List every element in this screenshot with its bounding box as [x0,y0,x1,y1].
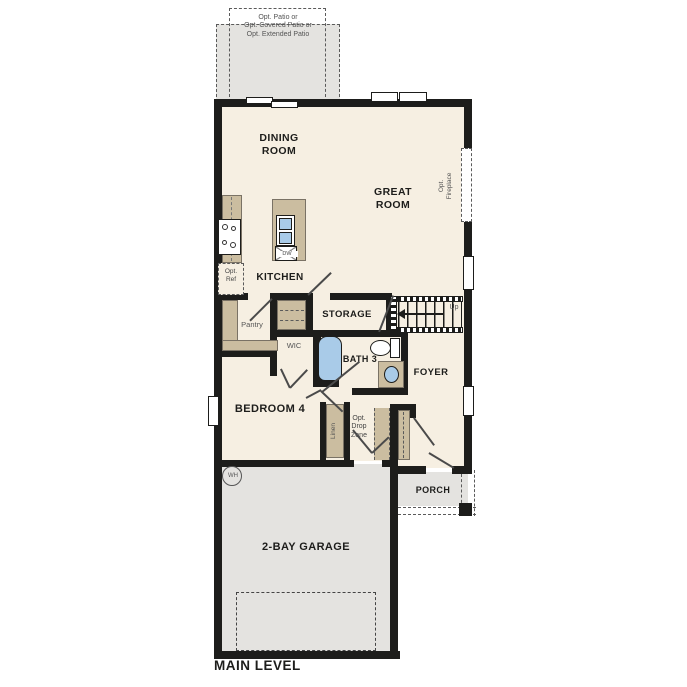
room-label-bath3: BATH 3 [338,354,382,365]
room-label-foyer: FOYER [407,367,455,379]
patio-label: Opt. Patio or Opt. Covered Patio or Opt.… [220,14,336,39]
sliding-door-panel [246,97,273,104]
room-label-garage: 2-BAY GARAGE [262,541,350,555]
window [399,92,427,102]
pantry-shelf-bottom [222,340,278,351]
drop-zone-cabinet [374,408,390,460]
window [371,92,398,102]
wall-closet-right-stub [410,404,416,418]
burner [230,242,236,248]
floor-plan: Opt. Patio or Opt. Covered Patio or Opt.… [0,0,687,687]
stairs-up-label: Up [445,304,463,312]
sliding-door-panel [271,101,298,108]
window [463,386,474,416]
wall-porch-front-a [398,466,426,474]
opt-fireplace-label: Opt. Fireplace [438,166,458,206]
room-label-storage: STORAGE [316,309,378,321]
wall-left [214,99,222,659]
wall-kitchen-c [330,293,392,300]
window [208,396,219,426]
wall-kitchen-b [270,293,308,300]
dishwasher: DW [275,246,297,261]
shelf-line [280,310,304,311]
room-label-bedroom4: BEDROOM 4 [228,403,312,417]
burner [222,224,228,230]
porch-post [459,503,472,516]
closet-rod-line [403,412,404,458]
porch-dashed-right-outer [474,470,475,516]
water-heater-label: WH [223,473,243,480]
patio-label-line1: Opt. Patio or [220,14,336,22]
burner [231,226,236,231]
cooktop [218,219,241,255]
opt-fireplace-outline [461,148,472,222]
page-title: MAIN LEVEL [214,658,374,675]
coat-closet [398,410,410,460]
island-sink [276,215,295,246]
room-label-dining: DINING ROOM [248,132,310,158]
dishwasher-label: DW [276,251,298,257]
hall-closet-shelves [277,300,306,330]
stair-direction-line [404,313,444,315]
shelf-line [280,320,304,321]
patio-label-line3: Opt. Extended Patio [220,31,336,39]
room-label-great: GREAT ROOM [362,186,424,212]
pantry-label: Pantry [230,321,274,330]
wall-pantry-bottom [214,350,276,357]
stair-arrow-head [397,309,405,319]
garage-door-outline [236,592,376,651]
burner [222,240,227,245]
room-label-porch: PORCH [404,485,462,496]
vanity-sink [384,366,399,383]
water-heater: WH [222,466,242,486]
wall-porch-front-b [452,466,472,474]
wall-garage-right [390,404,398,659]
wall-hall-garage-b [382,460,390,467]
sink-basin [279,218,292,230]
room-label-kitchen: KITCHEN [248,272,312,285]
toilet-tank [390,338,400,358]
stair-rail-bottom [397,327,463,333]
wall-bath-bottom [352,388,408,395]
linen-label: Linen [330,411,340,451]
wall-storage-bottom [270,330,408,337]
wic-label: WIC [279,342,309,351]
opt-ref-label: Opt. Ref [219,268,243,283]
patio-label-line2: Opt. Covered Patio or [220,22,336,30]
sink-basin [279,232,292,244]
window [463,256,474,290]
